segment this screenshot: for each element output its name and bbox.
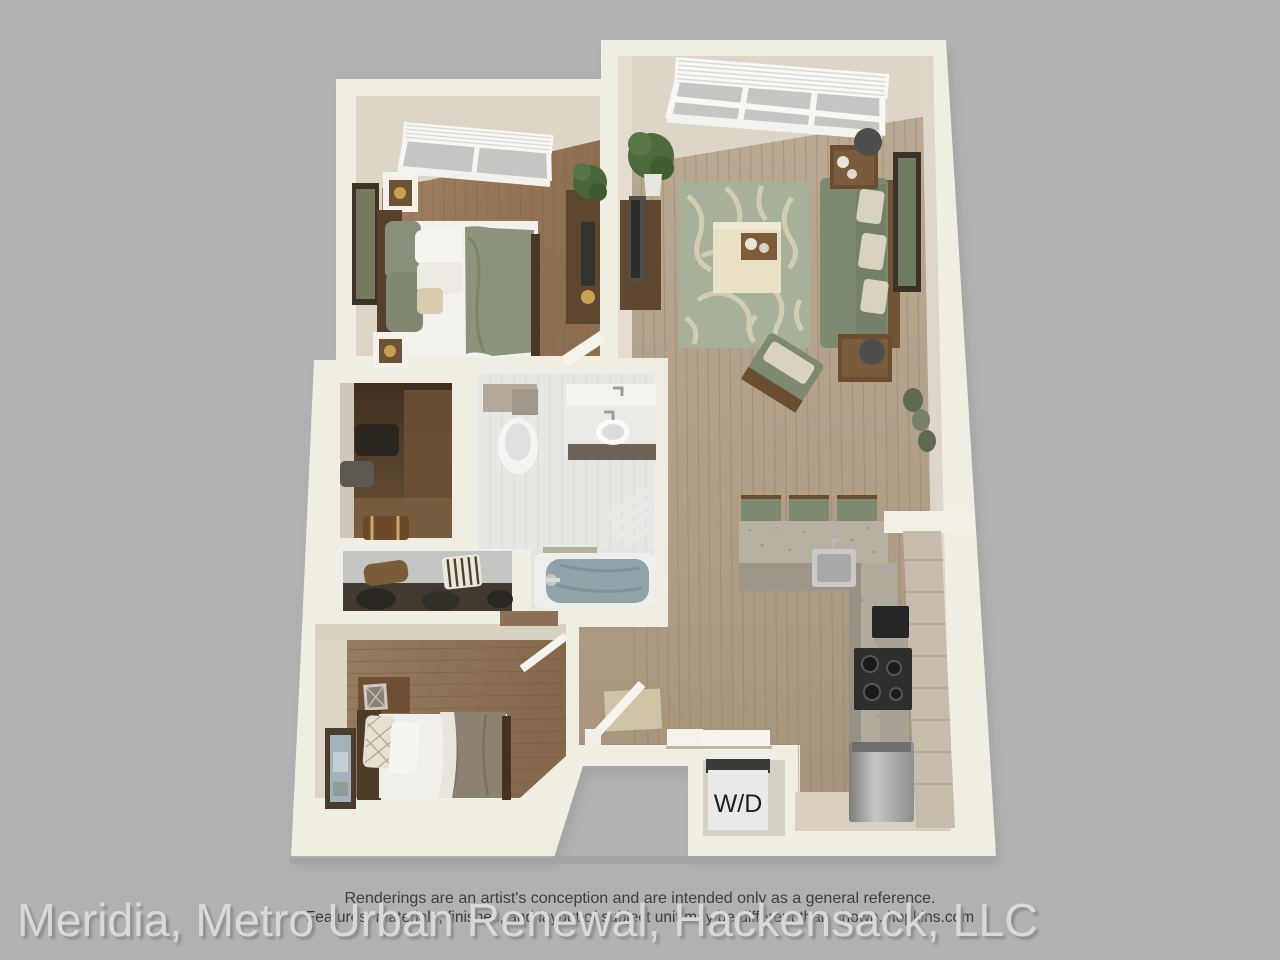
svg-text:W/D: W/D bbox=[714, 790, 763, 818]
svg-text:Meridia, Metro Urban Renewal,: Meridia, Metro Urban Renewal, Hackensack… bbox=[17, 894, 1038, 946]
